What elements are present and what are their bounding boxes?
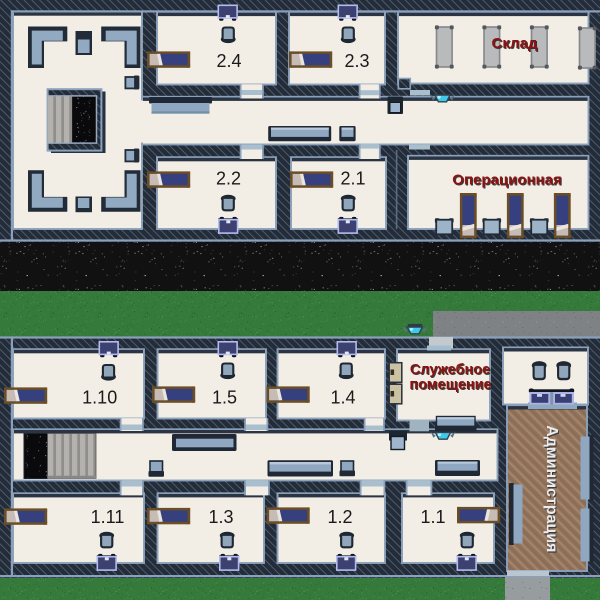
svg-text:1.5: 1.5 bbox=[212, 388, 237, 408]
svg-text:1.1: 1.1 bbox=[420, 507, 445, 527]
svg-text:2.3: 2.3 bbox=[344, 51, 369, 71]
svg-text:1.2: 1.2 bbox=[327, 507, 352, 527]
svg-text:2.4: 2.4 bbox=[216, 51, 241, 71]
svg-text:Операционная: Операционная bbox=[452, 172, 561, 189]
svg-text:2.2: 2.2 bbox=[216, 169, 241, 189]
svg-text:1.10: 1.10 bbox=[82, 388, 117, 408]
svg-text:1.4: 1.4 bbox=[330, 388, 355, 408]
svg-text:1.3: 1.3 bbox=[208, 507, 233, 527]
svg-text:Склад: Склад bbox=[492, 35, 538, 52]
svg-text:Служебное: Служебное bbox=[410, 362, 490, 378]
svg-text:1.11: 1.11 bbox=[91, 507, 125, 527]
svg-text:помещение: помещение bbox=[409, 377, 491, 393]
svg-text:2.1: 2.1 bbox=[340, 169, 365, 189]
svg-text:Администрация: Администрация bbox=[543, 425, 560, 552]
